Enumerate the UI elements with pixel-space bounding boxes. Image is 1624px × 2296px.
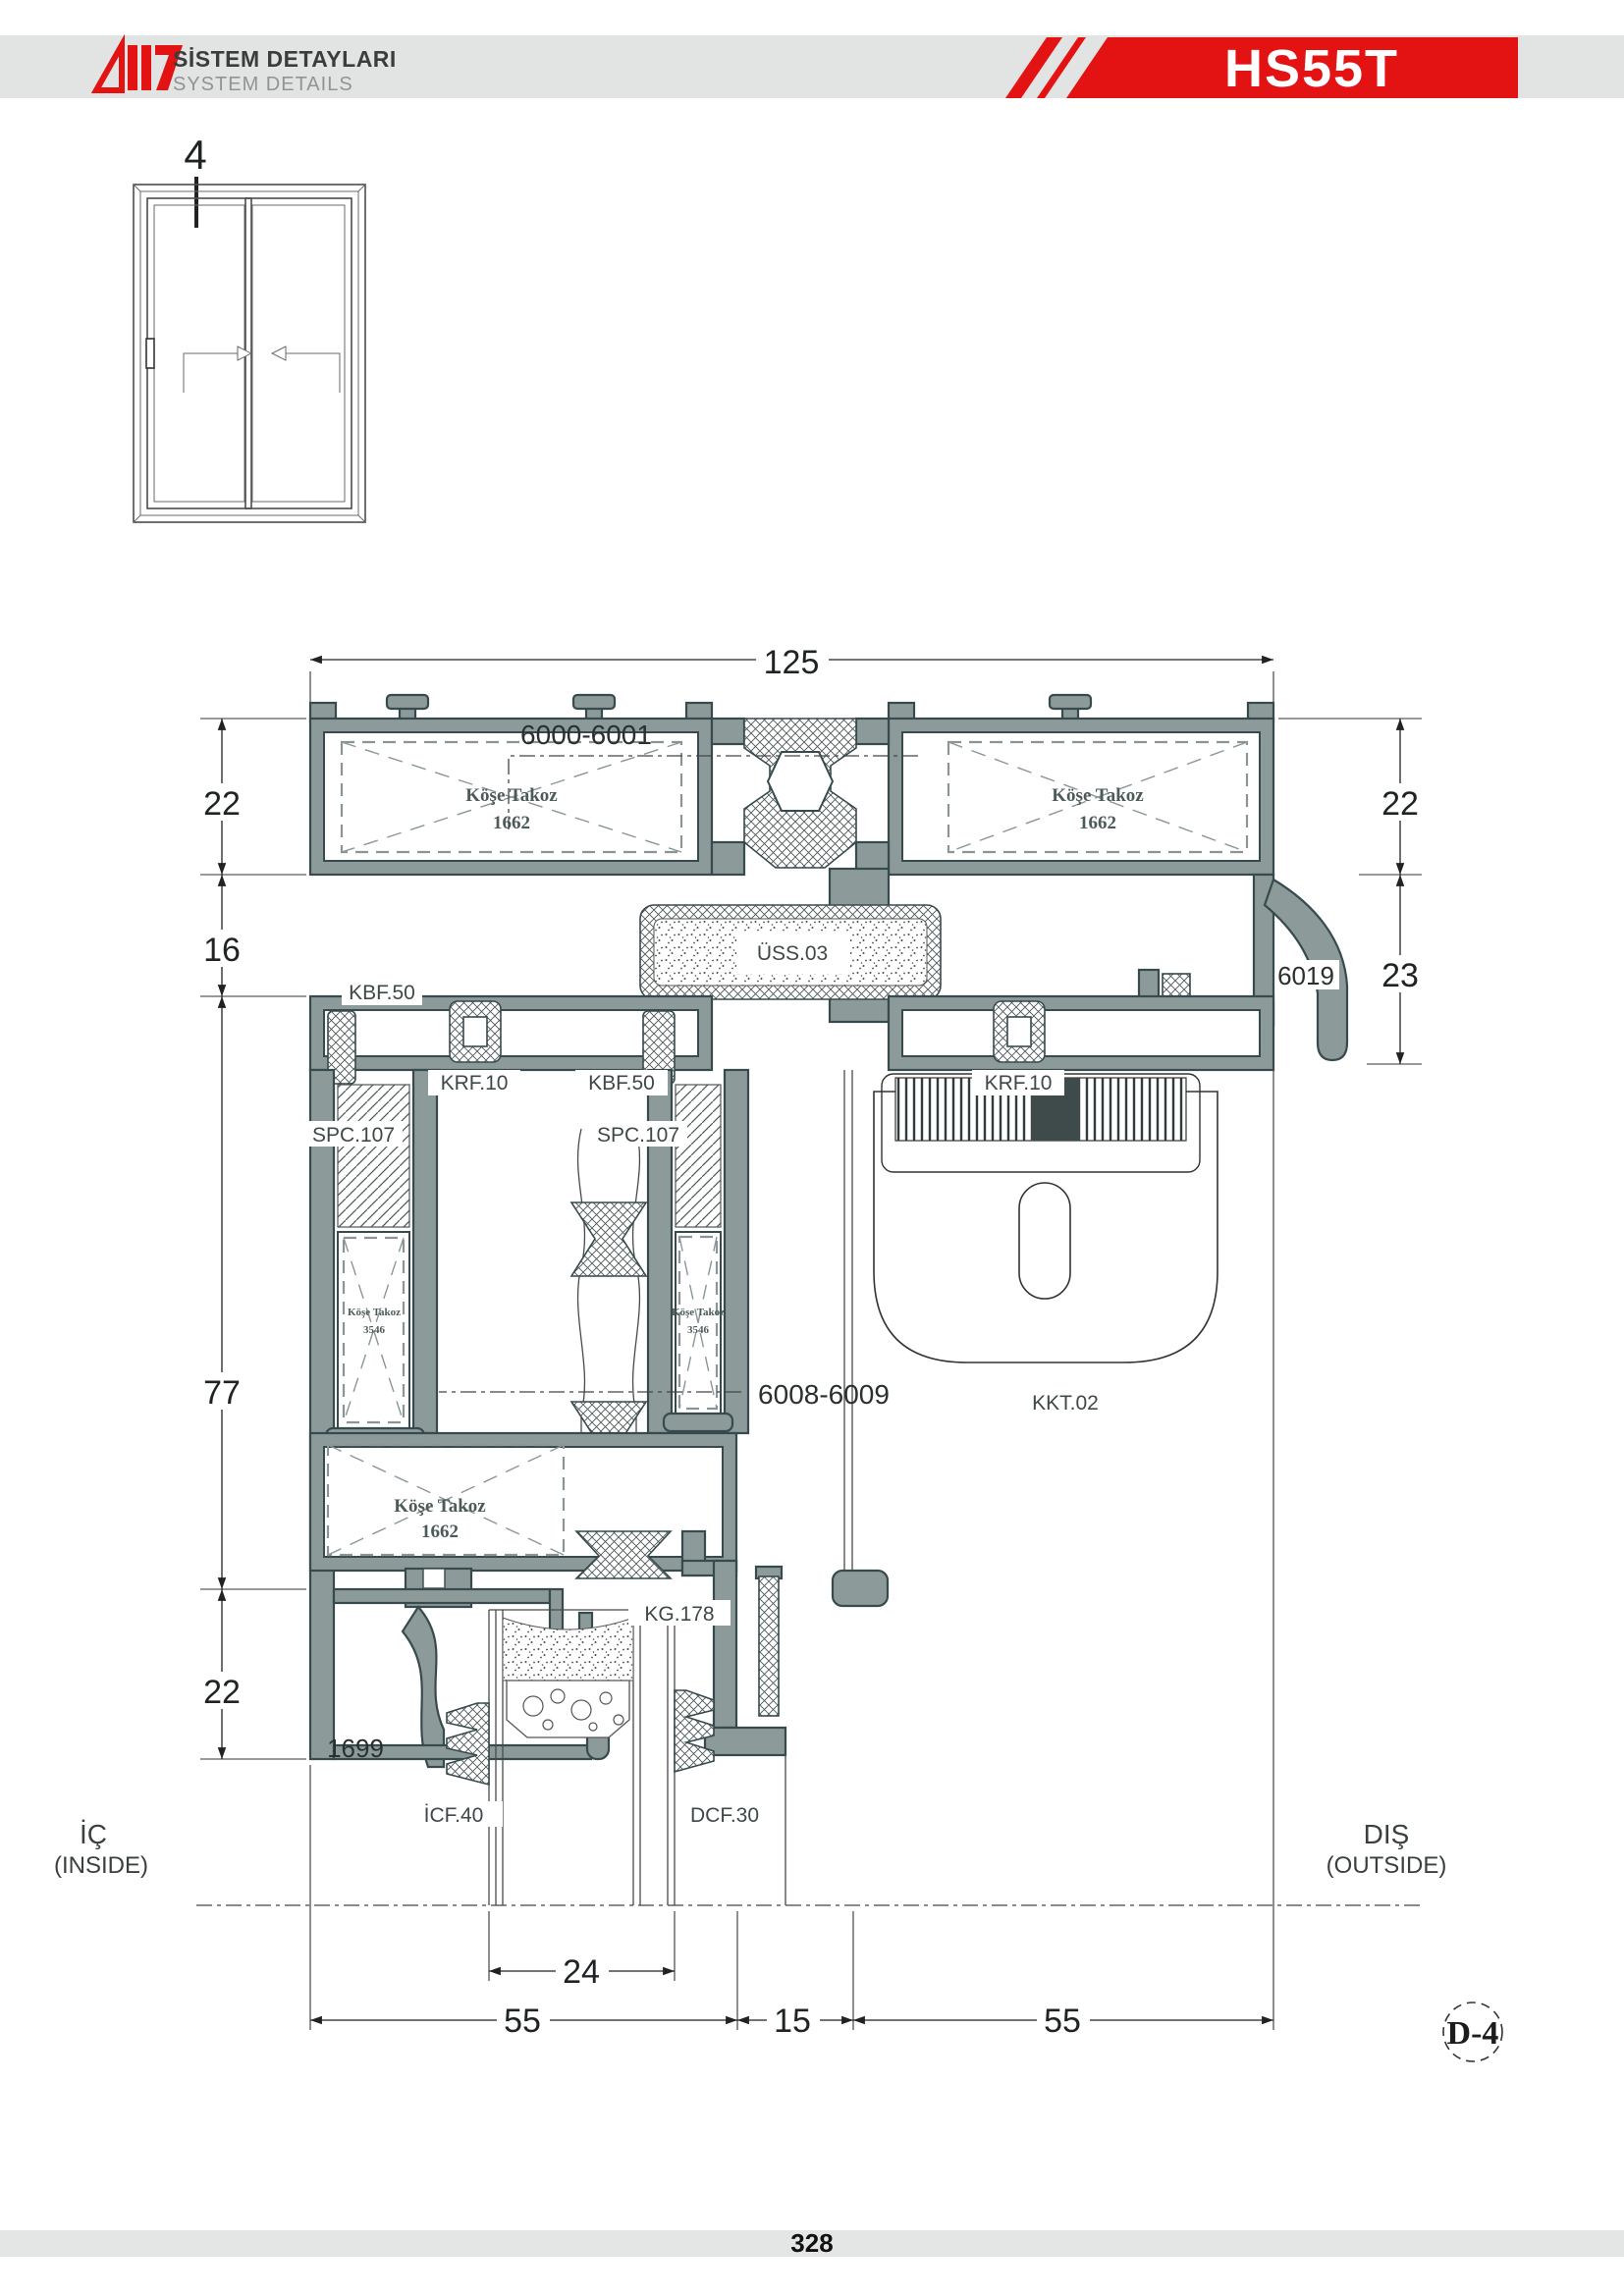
glazing-channel-left: Köşe Takoz 3546: [326, 1232, 424, 1446]
corner-block-3546: 3546: [687, 1324, 710, 1336]
label-1699: 1699: [327, 1734, 384, 1763]
icf40-gasket: [447, 1703, 489, 1785]
corner-block-label: Köşe Takoz: [465, 785, 558, 806]
krf10-gasket-left: [450, 1001, 501, 1062]
spc107-packer-left: [338, 1085, 409, 1227]
corner-block-label: Köşe Takoz: [348, 1307, 401, 1318]
spc107-packer-right: [676, 1085, 721, 1227]
detail-ref-label: D-4: [1447, 2015, 1499, 2052]
detail-reference-badge: D-4: [1443, 2002, 1502, 2061]
handle: [146, 339, 154, 368]
label-icf40: İCF.40: [424, 1804, 484, 1827]
dim-right-23: 23: [1381, 957, 1419, 994]
slide-direction-arrow-right-icon: [184, 347, 251, 393]
label-head-profiles: 6000-6001: [520, 720, 652, 750]
corner-block-number: 1662: [493, 813, 530, 833]
dim-left-22b: 22: [203, 1674, 241, 1711]
dim-left-77: 77: [203, 1374, 241, 1412]
label-dcf30: DCF.30: [690, 1804, 759, 1827]
page-header: SİSTEM DETAYLARI SYSTEM DETAILS HS55T: [0, 35, 1624, 98]
dim-bottom-15: 15: [774, 2002, 811, 2040]
label-inside-en: (INSIDE): [54, 1852, 148, 1879]
glass-spacer: [507, 1681, 629, 1737]
label-kkt02: KKT.02: [1032, 1392, 1099, 1415]
roller-carriage: [874, 1074, 1218, 1362]
leg-foot: [833, 1571, 888, 1606]
label-krf10-right: KRF.10: [985, 1072, 1053, 1095]
label-outside-tr: DIŞ: [1364, 1819, 1410, 1849]
product-code: HS55T: [1224, 39, 1399, 98]
dim-bottom-55a: 55: [504, 2002, 541, 2040]
dim-right-22: 22: [1381, 785, 1419, 823]
label-kbf50-mid: KBF.50: [588, 1072, 655, 1095]
label-sash-profiles: 6008-6009: [758, 1379, 890, 1410]
dim-glass-width: 24: [563, 1953, 600, 1991]
interlock-gasket-upper: [571, 1202, 646, 1276]
header-subtitle: SYSTEM DETAILS: [173, 74, 353, 95]
window-elevation-schematic: 4: [134, 132, 365, 522]
glazing-channel-right: Köşe Takoz 3546: [664, 1232, 732, 1431]
header-title: SİSTEM DETAYLARI: [173, 46, 397, 72]
dim-left-16: 16: [203, 932, 241, 969]
corner-block-number: 1662: [421, 1522, 459, 1542]
dcf30-gasket: [675, 1690, 714, 1772]
corner-block-label: Köşe Takoz: [394, 1496, 486, 1517]
glass-side-channel: [682, 1531, 785, 1905]
dim-overall-width: 125: [764, 644, 820, 681]
glass-edge-sealant: [503, 1618, 633, 1681]
corner-block-number: 1662: [1079, 813, 1116, 833]
label-outside-en: (OUTSIDE): [1326, 1852, 1447, 1879]
head-profile-right: Köşe Takoz 1662: [889, 695, 1273, 875]
corner-block-3546: 3546: [363, 1324, 386, 1336]
label-krf10-left: KRF.10: [441, 1072, 509, 1095]
label-kg178: KG.178: [644, 1603, 714, 1626]
system-detail-drawing: SİSTEM DETAYLARI SYSTEM DETAILS HS55T 4: [0, 0, 1624, 2296]
catalog-page: SİSTEM DETAYLARI SYSTEM DETAILS HS55T 4: [0, 0, 1624, 2296]
kg178-gasket: [759, 1576, 779, 1716]
page-number: 328: [790, 2228, 833, 2258]
uss03-seal-block: ÜSS.03: [640, 905, 941, 999]
section-mark-label: 4: [184, 132, 206, 178]
corner-block-label: Köşe Takoz: [672, 1307, 725, 1318]
label-spc107-left: SPC.107: [312, 1124, 395, 1147]
page-footer: 328: [0, 2228, 1624, 2258]
label-kbf50-top: KBF.50: [349, 982, 415, 1004]
glazing-leg-wall: [403, 1607, 444, 1767]
label-6019: 6019: [1277, 961, 1334, 990]
slide-direction-arrow-left-icon: [272, 347, 340, 393]
label-uss03: ÜSS.03: [757, 942, 828, 965]
dim-left-22a: 22: [203, 785, 241, 823]
corner-block-label: Köşe Takoz: [1052, 785, 1144, 806]
label-inside-tr: İÇ: [80, 1819, 107, 1849]
side-labels: İÇ (INSIDE) DIŞ (OUTSIDE): [54, 1819, 1446, 1879]
roller-slot: [1019, 1183, 1070, 1299]
head-interlock: [712, 719, 889, 875]
krf10-gasket-right: [994, 1001, 1045, 1062]
label-spc107-right: SPC.107: [597, 1124, 679, 1147]
dim-bottom-55b: 55: [1044, 2002, 1081, 2040]
